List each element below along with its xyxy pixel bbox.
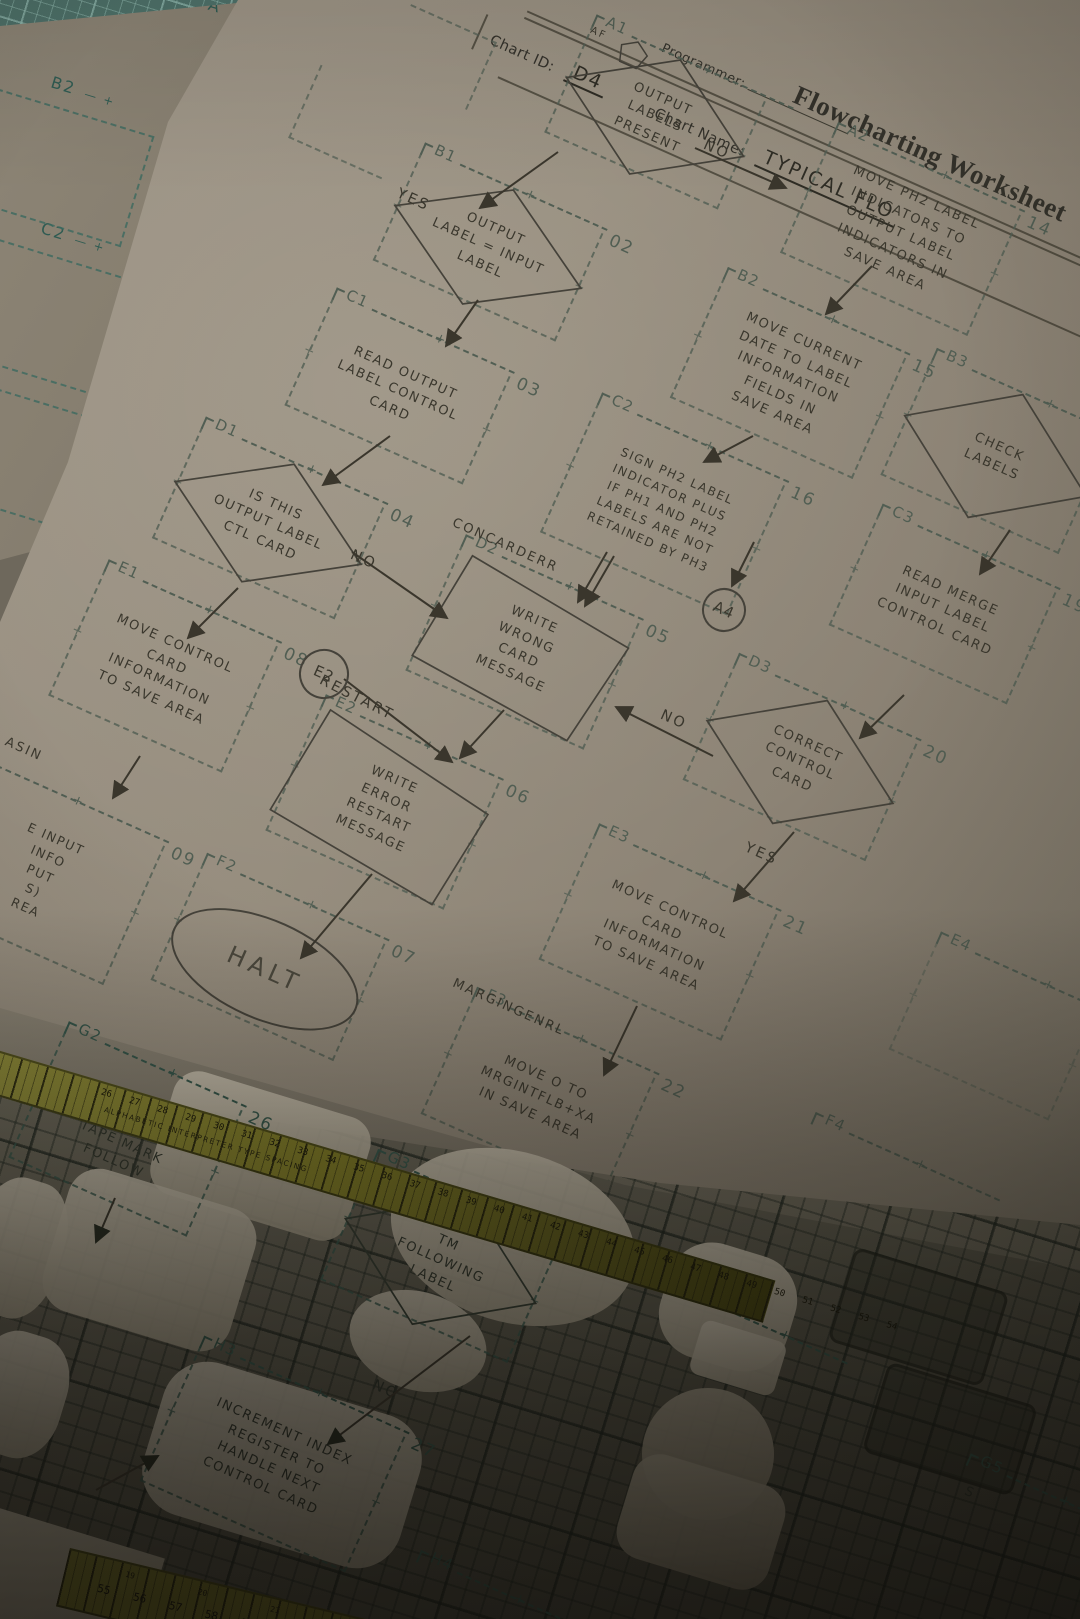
photo-flowchart-worksheet: A— B2— + C2— + Programmer: Flowcharting … xyxy=(0,0,1080,1619)
node-f2: F207 HALT xyxy=(151,863,386,1061)
cell-number: 21 xyxy=(780,912,812,941)
node-e3: E321 MOVE CONTROL CARD INFORMATION TO SA… xyxy=(539,833,778,1040)
edge-label-d3-yes: YES xyxy=(742,840,780,869)
left-marker-b2: B2— + xyxy=(49,73,119,111)
empty-cell-fragment xyxy=(288,65,414,180)
node-a1: A1 OUTPUT LABELS PRESENT xyxy=(544,24,766,209)
cell-number: 04 xyxy=(387,505,419,534)
cell-top: F4 xyxy=(812,1107,1004,1203)
cell-label: F4 xyxy=(822,1111,849,1136)
node-e2: E206 WRITE ERROR RESTART MESSAGE xyxy=(265,704,499,909)
cell-number: 07 xyxy=(388,941,420,970)
left-marker-b2-label: B2 xyxy=(49,73,79,99)
cell-number: 22 xyxy=(658,1075,690,1104)
connector-a4-label: A4 xyxy=(710,597,737,622)
node-d2: D205 WRITE WRONG CARD MESSAGE xyxy=(405,544,639,749)
node-c1: C103 READ OUTPUT LABEL CONTROL CARD xyxy=(284,297,510,484)
edge-label-d3-no: NO xyxy=(658,707,689,733)
cell-outline xyxy=(889,942,1080,1121)
cell-dashes xyxy=(849,1133,1000,1202)
cell-number: 16 xyxy=(787,483,819,512)
cell-number: 19 xyxy=(1059,590,1080,619)
cell-number: 09 xyxy=(167,843,199,872)
left-cell xyxy=(0,77,155,248)
node-e4: E4 xyxy=(889,942,1080,1121)
node-text: HALT xyxy=(221,937,308,1002)
node-e1: E108 MOVE CONTROL CARD INFORMATION TO SA… xyxy=(48,569,278,772)
cell-number: 20 xyxy=(920,741,952,770)
cell-number: 02 xyxy=(606,231,638,260)
cell-number: 14 xyxy=(1023,212,1055,241)
cell-number: 03 xyxy=(513,374,545,403)
node-text: MOVE CONTROL CARD INFORMATION TO SAVE AR… xyxy=(51,572,275,770)
node-d3: D320 CORRECT CONTROL CARD xyxy=(683,663,918,861)
cell-number: 05 xyxy=(642,621,674,650)
node-partial-09: 09 E INPUT INFO PUT S) REA xyxy=(0,763,165,985)
cell-number: 06 xyxy=(502,781,534,810)
empty-cell-fragment xyxy=(381,4,497,110)
left-marker-b2-dash: — + xyxy=(83,87,118,110)
chart-id-label: Chart ID: xyxy=(487,33,557,76)
node-text: MOVE CONTROL CARD INFORMATION TO SAVE AR… xyxy=(541,836,775,1038)
